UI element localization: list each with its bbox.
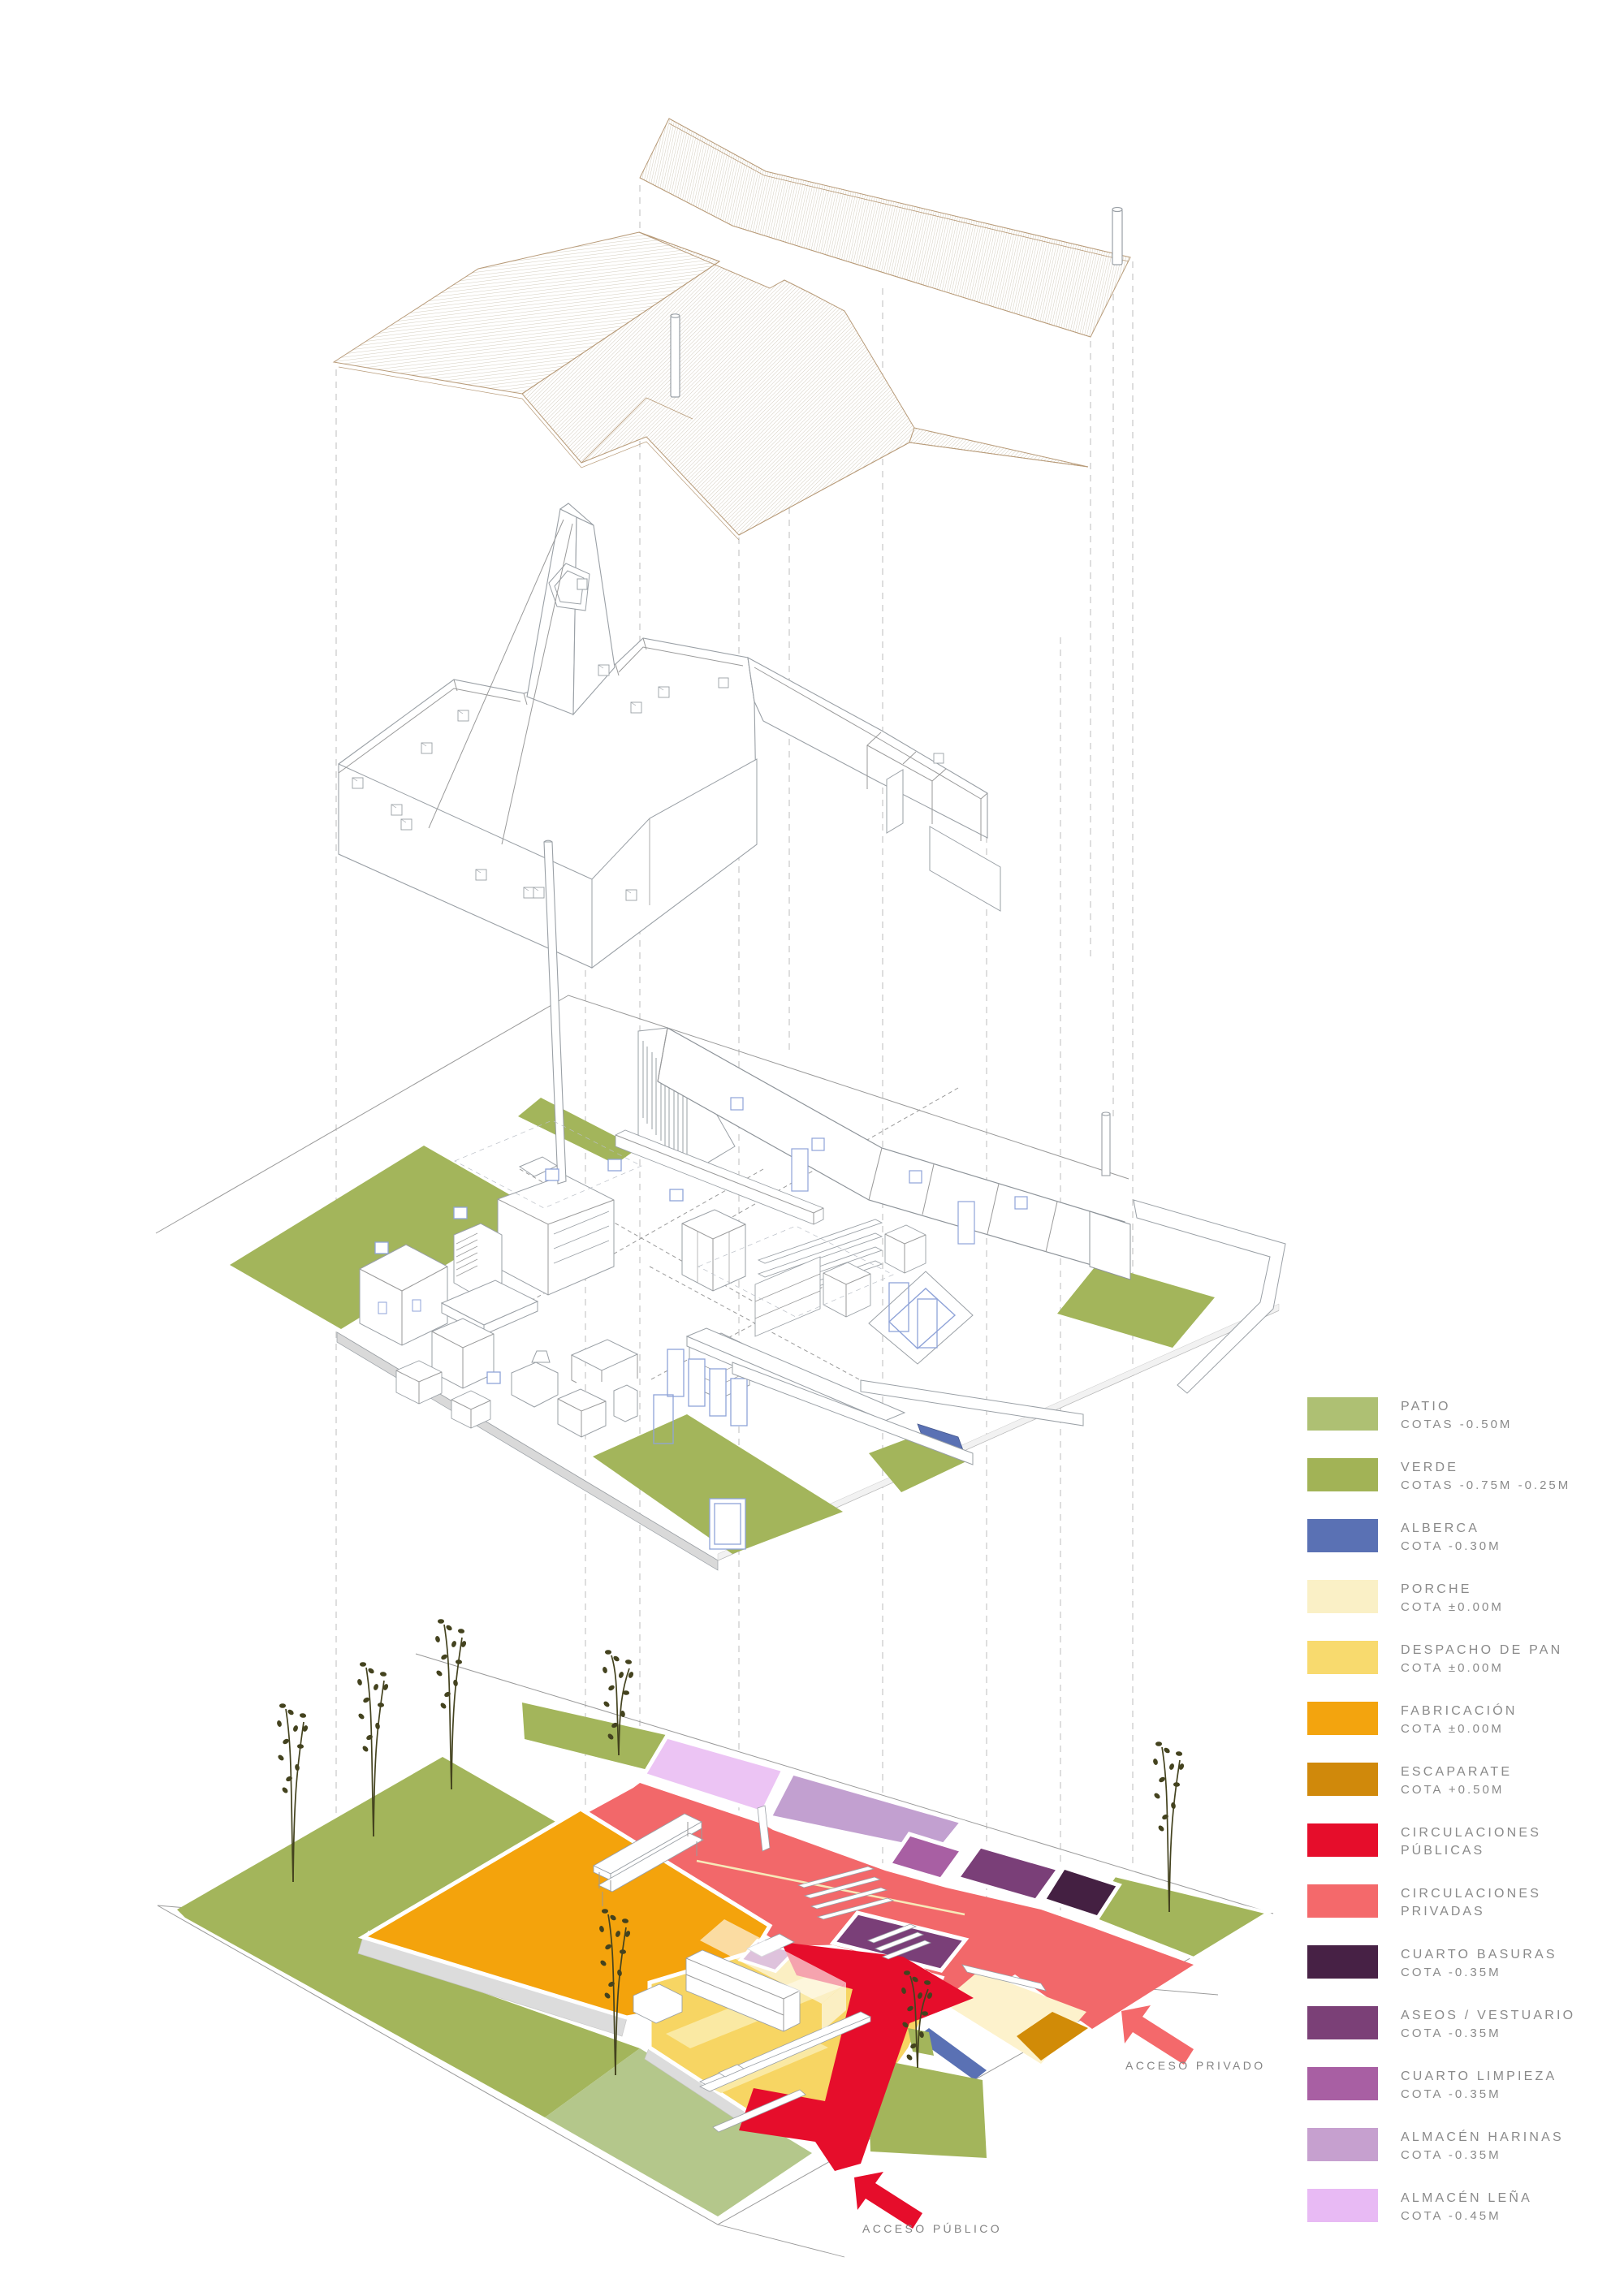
svg-text:ACCESO PÚBLICO: ACCESO PÚBLICO xyxy=(862,2222,1002,2235)
svg-text:PORCHE: PORCHE xyxy=(1401,1582,1472,1596)
svg-text:CUARTO BASURAS: CUARTO BASURAS xyxy=(1401,1948,1557,1962)
svg-text:COTA -0.35M: COTA -0.35M xyxy=(1401,2148,1501,2162)
svg-text:COTA -0.35M: COTA -0.35M xyxy=(1401,1966,1501,1979)
svg-text:ALMACÉN LEÑA: ALMACÉN LEÑA xyxy=(1401,2189,1532,2205)
svg-text:ESCAPARATE: ESCAPARATE xyxy=(1401,1765,1512,1779)
svg-text:COTA -0.30M: COTA -0.30M xyxy=(1401,1539,1501,1553)
svg-text:COTA ±0.00M: COTA ±0.00M xyxy=(1401,1661,1504,1675)
svg-text:CUARTO LIMPIEZA: CUARTO LIMPIEZA xyxy=(1401,2069,1557,2083)
svg-text:VERDE: VERDE xyxy=(1401,1461,1458,1474)
svg-text:FABRICACIÓN: FABRICACIÓN xyxy=(1401,1703,1518,1718)
svg-text:COTA ±0.00M: COTA ±0.00M xyxy=(1401,1722,1504,1736)
svg-text:CIRCULACIONES: CIRCULACIONES xyxy=(1401,1826,1541,1840)
svg-text:PÚBLICAS: PÚBLICAS xyxy=(1401,1842,1484,1858)
svg-text:COTAS -0.75M -0.25M: COTAS -0.75M -0.25M xyxy=(1401,1478,1570,1492)
svg-text:DESPACHO DE PAN: DESPACHO DE PAN xyxy=(1401,1643,1562,1657)
svg-text:COTA ±0.00M: COTA ±0.00M xyxy=(1401,1600,1504,1614)
svg-text:ACCESO PRIVADO: ACCESO PRIVADO xyxy=(1125,2059,1266,2072)
svg-text:ALBERCA: ALBERCA xyxy=(1401,1521,1479,1535)
svg-text:ASEOS / VESTUARIO: ASEOS / VESTUARIO xyxy=(1401,2009,1575,2022)
svg-text:COTAS -0.50M: COTAS -0.50M xyxy=(1401,1418,1512,1431)
svg-text:COTA -0.35M: COTA -0.35M xyxy=(1401,2026,1501,2040)
svg-text:CIRCULACIONES: CIRCULACIONES xyxy=(1401,1887,1541,1901)
svg-text:ALMACÉN HARINAS: ALMACÉN HARINAS xyxy=(1401,2129,1564,2144)
svg-text:COTA +0.50M: COTA +0.50M xyxy=(1401,1783,1504,1797)
svg-text:PATIO: PATIO xyxy=(1401,1400,1451,1413)
svg-text:COTA -0.35M: COTA -0.35M xyxy=(1401,2087,1501,2101)
svg-text:COTA -0.45M: COTA -0.45M xyxy=(1401,2209,1501,2223)
svg-text:PRIVADAS: PRIVADAS xyxy=(1401,1905,1485,1918)
